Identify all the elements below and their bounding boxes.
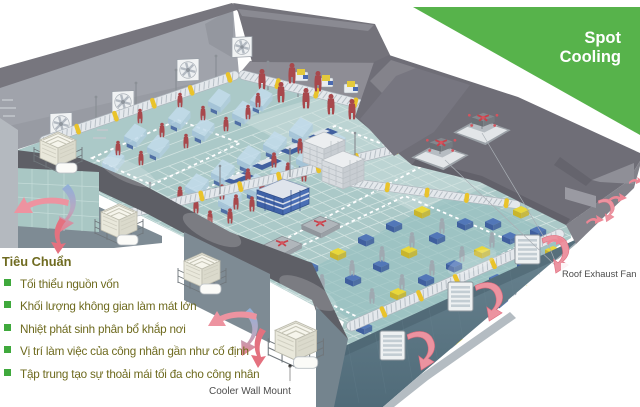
svg-text:Cooling: Cooling — [560, 48, 621, 66]
svg-text:Tối thiểu nguồn vốn: Tối thiểu nguồn vốn — [20, 278, 119, 291]
svg-text:Tập trung tạo sự thoải mái tối: Tập trung tạo sự thoải mái tối đa cho cô… — [20, 368, 259, 381]
svg-text:Roof Exhaust Fan: Roof Exhaust Fan — [562, 269, 636, 279]
svg-text:Spot: Spot — [584, 29, 621, 47]
svg-text:Nhiệt phát sinh phân bổ khắp n: Nhiệt phát sinh phân bổ khắp nơi — [20, 323, 186, 336]
svg-text:Cooler Wall Mount: Cooler Wall Mount — [209, 386, 291, 397]
svg-text:Khối lượng không gian làm mát: Khối lượng không gian làm mát lớn — [20, 300, 196, 313]
svg-text:Tiêu Chuẩn: Tiêu Chuẩn — [2, 254, 72, 269]
svg-text:Vị trí làm việc của công nhân: Vị trí làm việc của công nhân gần như cố… — [20, 345, 249, 358]
